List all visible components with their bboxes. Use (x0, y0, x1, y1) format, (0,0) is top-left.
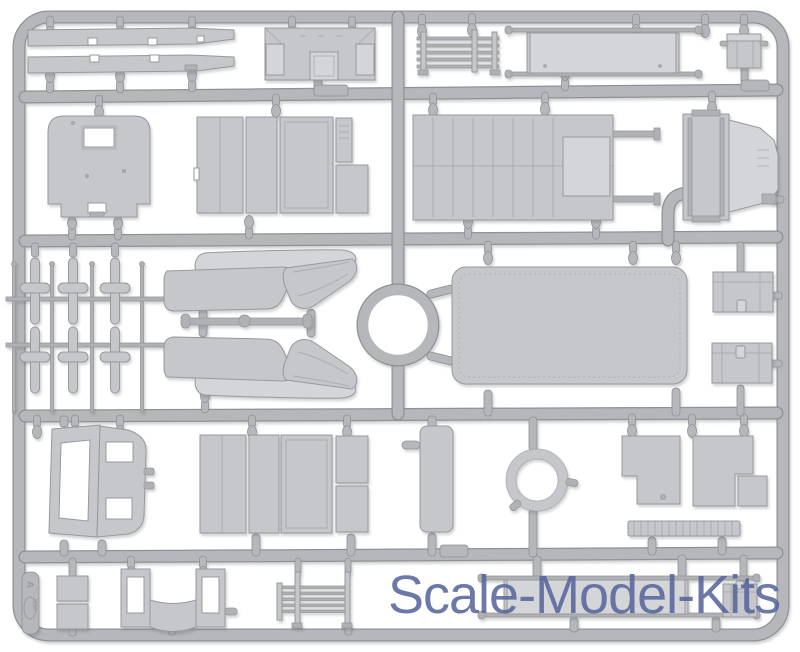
sprue-tag-letter: A (24, 581, 35, 588)
sprue-gate (740, 414, 749, 438)
sprue-gate (32, 243, 39, 257)
runner-ring-stub-2 (426, 351, 455, 366)
part-door-panel-group-2 (200, 435, 368, 533)
sprue-gate (678, 555, 686, 579)
sprue-gate (272, 94, 281, 118)
sprue-gate (69, 558, 76, 577)
part-window-door-frame (121, 569, 237, 632)
sprue-gate (60, 540, 68, 556)
part-bench-seat-2 (164, 337, 357, 398)
part-door-panel-group-1 (194, 117, 368, 213)
part-axle-tbar (58, 258, 88, 324)
sprue-gate (741, 80, 769, 91)
sprue-gate (718, 537, 726, 555)
part-engine-hood (683, 110, 778, 222)
sprue-gate (628, 414, 637, 438)
sprue-gate (533, 556, 541, 579)
part-stretcher-2 (478, 574, 760, 619)
sprue-gate (116, 70, 125, 94)
sprue-photo: A ICM (0, 0, 800, 652)
part-sprue-tag: A ICM (22, 572, 39, 634)
sprue-tag-brand: ICM (31, 599, 37, 610)
part-cargo-floor (413, 115, 660, 220)
sprue-gate (648, 537, 656, 555)
part-roof-panel (452, 267, 687, 384)
sprue-gate (629, 241, 638, 265)
part-running-board-2 (28, 55, 234, 73)
part-axle-tbar (100, 258, 130, 324)
part-fender-square (738, 476, 767, 506)
part-rear-wall-panel (48, 116, 150, 217)
part-small-hatch-1 (57, 576, 88, 601)
sprue-gate (672, 241, 681, 265)
part-windshield-assembly (49, 425, 154, 537)
part-axle-tbar (100, 327, 130, 393)
sprue-gate (188, 69, 197, 93)
part-axle-tbar (58, 327, 88, 393)
part-stretcher-1 (505, 26, 702, 78)
sprue-gate (429, 93, 438, 117)
sprue-gate (701, 14, 710, 38)
part-stowage-box (720, 34, 768, 68)
sprue-gate (712, 617, 720, 632)
sprue-gate (347, 534, 355, 556)
sprue-gate (252, 534, 260, 556)
part-storage-chest-2 (712, 343, 772, 383)
part-roof-rack-1 (417, 30, 500, 75)
part-bulkhead-panel (265, 28, 375, 80)
sprue-gate (112, 243, 119, 257)
sprue-gate (98, 540, 106, 556)
sprue-gate (484, 390, 492, 416)
sprue-gate (737, 385, 744, 416)
part-storage-chest-3 (723, 581, 757, 617)
sprue-gate (33, 415, 42, 439)
part-storage-chest-1 (713, 272, 773, 312)
sprue-gate (688, 414, 697, 438)
sprue-gate (484, 241, 493, 265)
part-small-hatch-2 (57, 604, 88, 629)
sprue-gate (428, 533, 436, 556)
sprue-gate (245, 216, 254, 240)
sprue-gate (95, 95, 104, 119)
sprue-gate-block (440, 545, 468, 557)
sprue-gate (60, 416, 68, 427)
runner-ring-stub-1 (426, 284, 455, 299)
sprue-gate (314, 85, 348, 96)
part-bench-seat-1 (164, 250, 357, 311)
part-tire-ring (506, 449, 578, 512)
part-roof-rack-2 (277, 572, 352, 628)
sprue-gate (737, 242, 744, 274)
sprue-drawing: A ICM (0, 0, 800, 652)
part-side-plank (402, 426, 453, 532)
sprue-gate (529, 509, 537, 557)
sprue-gate (343, 415, 352, 439)
sprue-gate (541, 92, 550, 116)
sprue-gate (68, 217, 77, 241)
sprue-gate (114, 217, 123, 241)
part-tread-strip (628, 521, 740, 536)
sprue-gate (70, 243, 77, 257)
sprue-gate (570, 617, 578, 632)
part-running-board-1 (28, 28, 234, 46)
part-fender-plate-1 (622, 436, 680, 504)
sprue-gate (529, 417, 537, 451)
sprue-gate (672, 388, 680, 416)
